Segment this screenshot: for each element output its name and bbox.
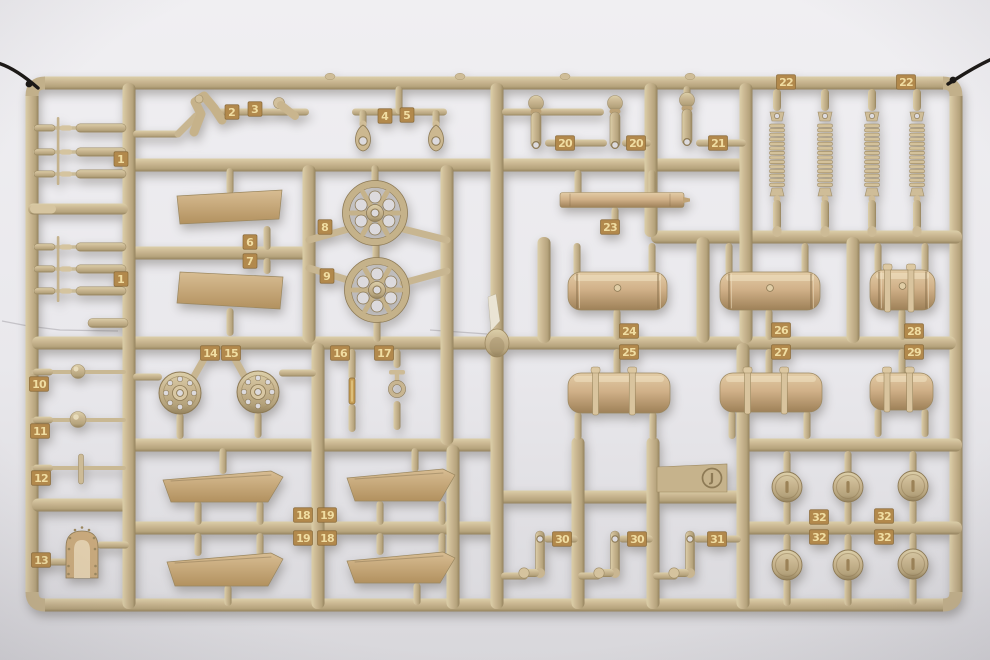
sprue-photo: J112345678910111213141516171819191820202… bbox=[0, 0, 990, 660]
photo-vignette bbox=[0, 0, 990, 660]
sprue-photo-svg: J112345678910111213141516171819191820202… bbox=[0, 0, 990, 660]
